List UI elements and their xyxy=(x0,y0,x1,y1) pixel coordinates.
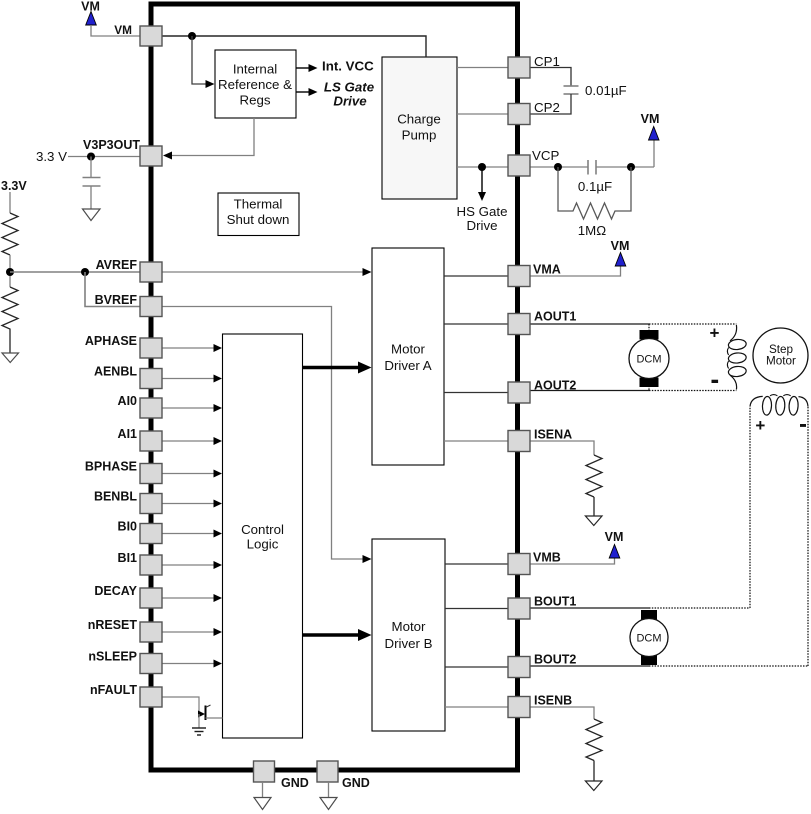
svg-text:3.3V: 3.3V xyxy=(1,179,27,193)
svg-text:AOUT2: AOUT2 xyxy=(534,379,576,393)
svg-text:Shut down: Shut down xyxy=(227,212,290,227)
svg-text:VM: VM xyxy=(114,23,132,37)
svg-text:0.1µF: 0.1µF xyxy=(578,179,612,194)
svg-text:BOUT1: BOUT1 xyxy=(534,595,576,609)
svg-text:DECAY: DECAY xyxy=(94,584,137,598)
svg-text:nSLEEP: nSLEEP xyxy=(88,650,137,664)
svg-text:+: + xyxy=(710,324,720,343)
svg-text:VM: VM xyxy=(641,112,660,126)
svg-text:BPHASE: BPHASE xyxy=(85,460,137,474)
svg-text:BVREF: BVREF xyxy=(95,293,138,307)
svg-text:AI0: AI0 xyxy=(118,394,138,408)
svg-text:AI1: AI1 xyxy=(118,427,138,441)
svg-text:Regs: Regs xyxy=(239,93,270,108)
svg-text:Driver A: Driver A xyxy=(384,358,431,373)
svg-text:Drive: Drive xyxy=(333,94,367,109)
svg-text:BI0: BI0 xyxy=(118,520,138,534)
svg-text:Motor: Motor xyxy=(391,342,426,357)
svg-text:Int. VCC: Int. VCC xyxy=(322,59,374,74)
svg-text:Control: Control xyxy=(241,522,284,537)
svg-text:Driver B: Driver B xyxy=(384,636,432,651)
svg-text:HS Gate: HS Gate xyxy=(457,204,508,219)
svg-text:VCP: VCP xyxy=(532,148,559,163)
svg-text:+: + xyxy=(755,416,765,435)
svg-text:Motor: Motor xyxy=(392,619,427,634)
svg-text:nFAULT: nFAULT xyxy=(90,683,137,697)
svg-text:APHASE: APHASE xyxy=(85,334,137,348)
svg-text:Logic: Logic xyxy=(247,537,279,552)
svg-text:LS Gate: LS Gate xyxy=(324,80,375,95)
svg-text:Charge: Charge xyxy=(397,112,441,127)
svg-text:GND: GND xyxy=(342,776,370,790)
svg-text:DCM: DCM xyxy=(636,354,661,366)
svg-text:0.01µF: 0.01µF xyxy=(585,83,627,98)
svg-text:VMA: VMA xyxy=(533,263,561,277)
svg-text:Thermal: Thermal xyxy=(234,197,283,212)
svg-text:V3P3OUT: V3P3OUT xyxy=(83,138,140,152)
svg-text:Motor: Motor xyxy=(766,355,796,368)
svg-text:ISENB: ISENB xyxy=(534,694,572,708)
svg-text:CP1: CP1 xyxy=(534,54,560,69)
svg-text:Reference &: Reference & xyxy=(218,77,292,92)
svg-text:Internal: Internal xyxy=(233,62,277,77)
svg-text:BOUT2: BOUT2 xyxy=(534,653,576,667)
svg-text:VM: VM xyxy=(605,530,624,544)
svg-text:BENBL: BENBL xyxy=(94,490,137,504)
svg-text:1MΩ: 1MΩ xyxy=(578,223,606,238)
svg-text:VM: VM xyxy=(81,0,100,14)
svg-text:AVREF: AVREF xyxy=(96,258,138,272)
svg-text:nRESET: nRESET xyxy=(88,618,138,632)
svg-text:3.3 V: 3.3 V xyxy=(36,149,67,164)
svg-text:Drive: Drive xyxy=(466,218,497,233)
svg-text:AOUT1: AOUT1 xyxy=(534,310,576,324)
svg-text:AENBL: AENBL xyxy=(94,365,137,379)
svg-text:ISENA: ISENA xyxy=(534,428,572,442)
svg-text:VM: VM xyxy=(611,239,630,253)
svg-text:DCM: DCM xyxy=(636,633,661,645)
svg-text:CP2: CP2 xyxy=(534,100,560,115)
svg-text:GND: GND xyxy=(281,776,309,790)
svg-text:BI1: BI1 xyxy=(118,551,138,565)
svg-text:Pump: Pump xyxy=(402,128,437,143)
svg-text:VMB: VMB xyxy=(533,551,561,565)
